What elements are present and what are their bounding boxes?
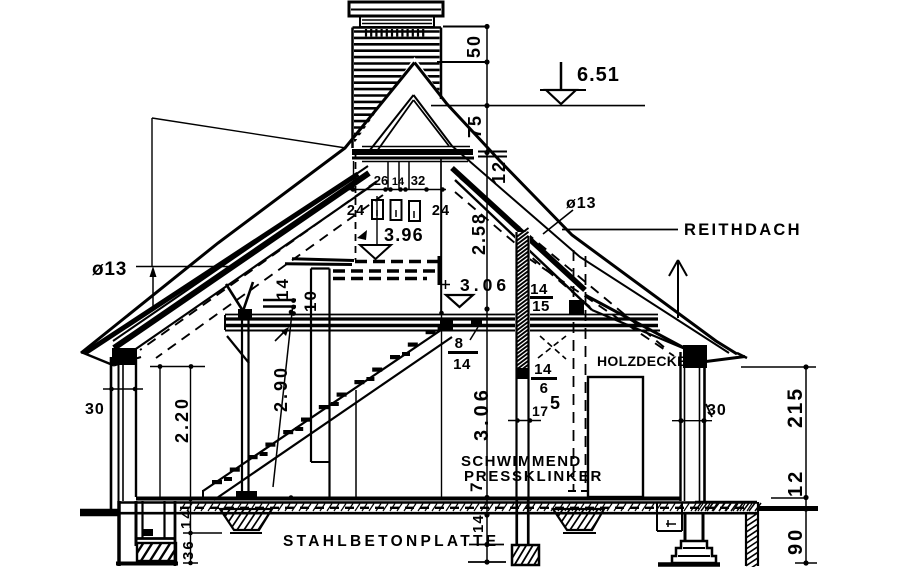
svg-text:10: 10: [301, 289, 320, 312]
svg-text:6.51: 6.51: [577, 64, 620, 86]
svg-text:8: 8: [455, 335, 464, 352]
svg-text:14: 14: [453, 356, 471, 373]
svg-text:14: 14: [470, 514, 487, 533]
svg-text:HOLZDECKE: HOLZDECKE: [597, 353, 687, 369]
svg-text:3.96: 3.96: [384, 225, 424, 245]
svg-text:5: 5: [550, 393, 561, 413]
svg-text:ø13: ø13: [92, 259, 127, 280]
svg-text:3.06: 3.06: [471, 386, 493, 441]
svg-text:12: 12: [489, 160, 509, 184]
svg-text:50: 50: [464, 34, 484, 58]
svg-text:3.06: 3.06: [460, 275, 510, 295]
svg-text:STAHLBETONPLATTE: STAHLBETONPLATTE: [283, 533, 499, 550]
svg-text:32: 32: [411, 173, 425, 188]
svg-text:2.58: 2.58: [469, 212, 489, 255]
svg-text:24: 24: [347, 203, 365, 219]
svg-text:2.90: 2.90: [271, 365, 291, 412]
svg-text:14: 14: [530, 281, 548, 298]
svg-text:75: 75: [465, 114, 485, 138]
svg-text:14: 14: [392, 176, 405, 188]
svg-text:14: 14: [534, 361, 552, 378]
svg-text:36: 36: [180, 539, 197, 560]
svg-text:PRESSKLINKER: PRESSKLINKER: [464, 468, 603, 485]
svg-text:17: 17: [532, 403, 549, 419]
svg-text:2.20: 2.20: [172, 396, 192, 443]
svg-text:215: 215: [784, 387, 807, 428]
svg-text:6: 6: [540, 380, 549, 397]
svg-text:15: 15: [532, 298, 550, 315]
svg-text:12: 12: [785, 469, 807, 497]
svg-text:14: 14: [273, 277, 292, 300]
svg-text:14: 14: [178, 508, 195, 529]
svg-text:26: 26: [374, 173, 388, 188]
svg-text:30: 30: [85, 401, 105, 418]
svg-text:ø13: ø13: [566, 195, 597, 212]
svg-text:REITHDACH: REITHDACH: [684, 221, 802, 239]
svg-text:90: 90: [785, 527, 807, 555]
